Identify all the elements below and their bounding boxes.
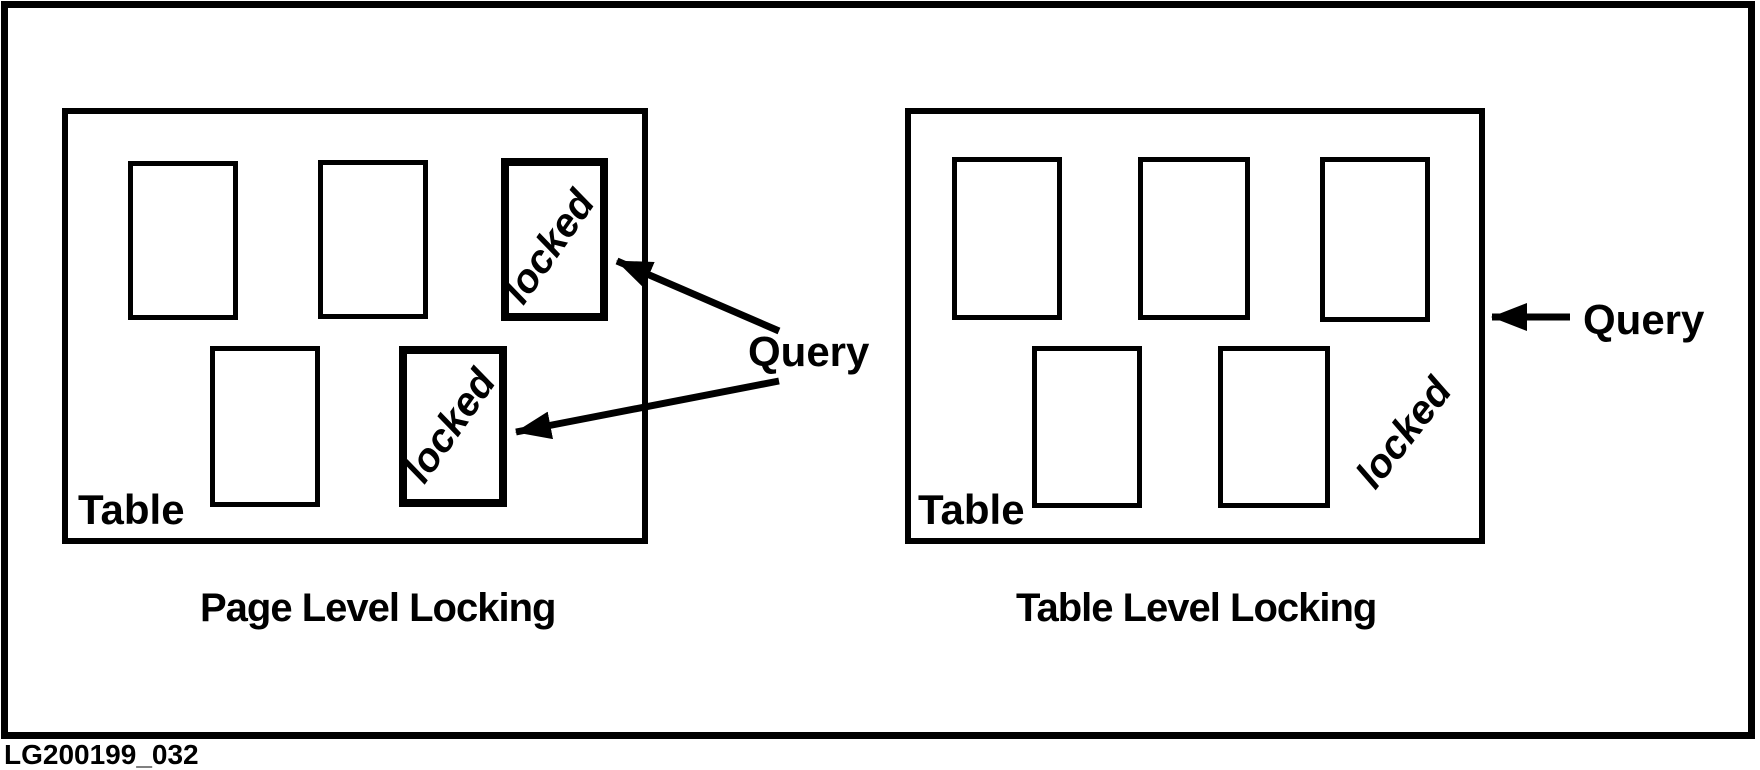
diagram-caption: Table Level Locking [1016,588,1376,628]
query-label: Query [748,331,869,373]
table-label: Table [918,489,1025,531]
figure-canvas: locked locked Table Query Page Level Loc… [0,0,1760,770]
table-label: Table [78,489,185,531]
diagram-caption: Page Level Locking [200,588,555,628]
page-box [318,160,428,319]
figure-id-label: LG200199_032 [4,741,199,769]
page-box [1138,157,1250,320]
page-box [128,161,238,320]
page-box [1218,346,1330,508]
page-box [1320,157,1430,322]
page-box [1032,346,1142,508]
query-label: Query [1583,299,1704,341]
page-box [210,346,320,507]
page-box [952,157,1062,320]
